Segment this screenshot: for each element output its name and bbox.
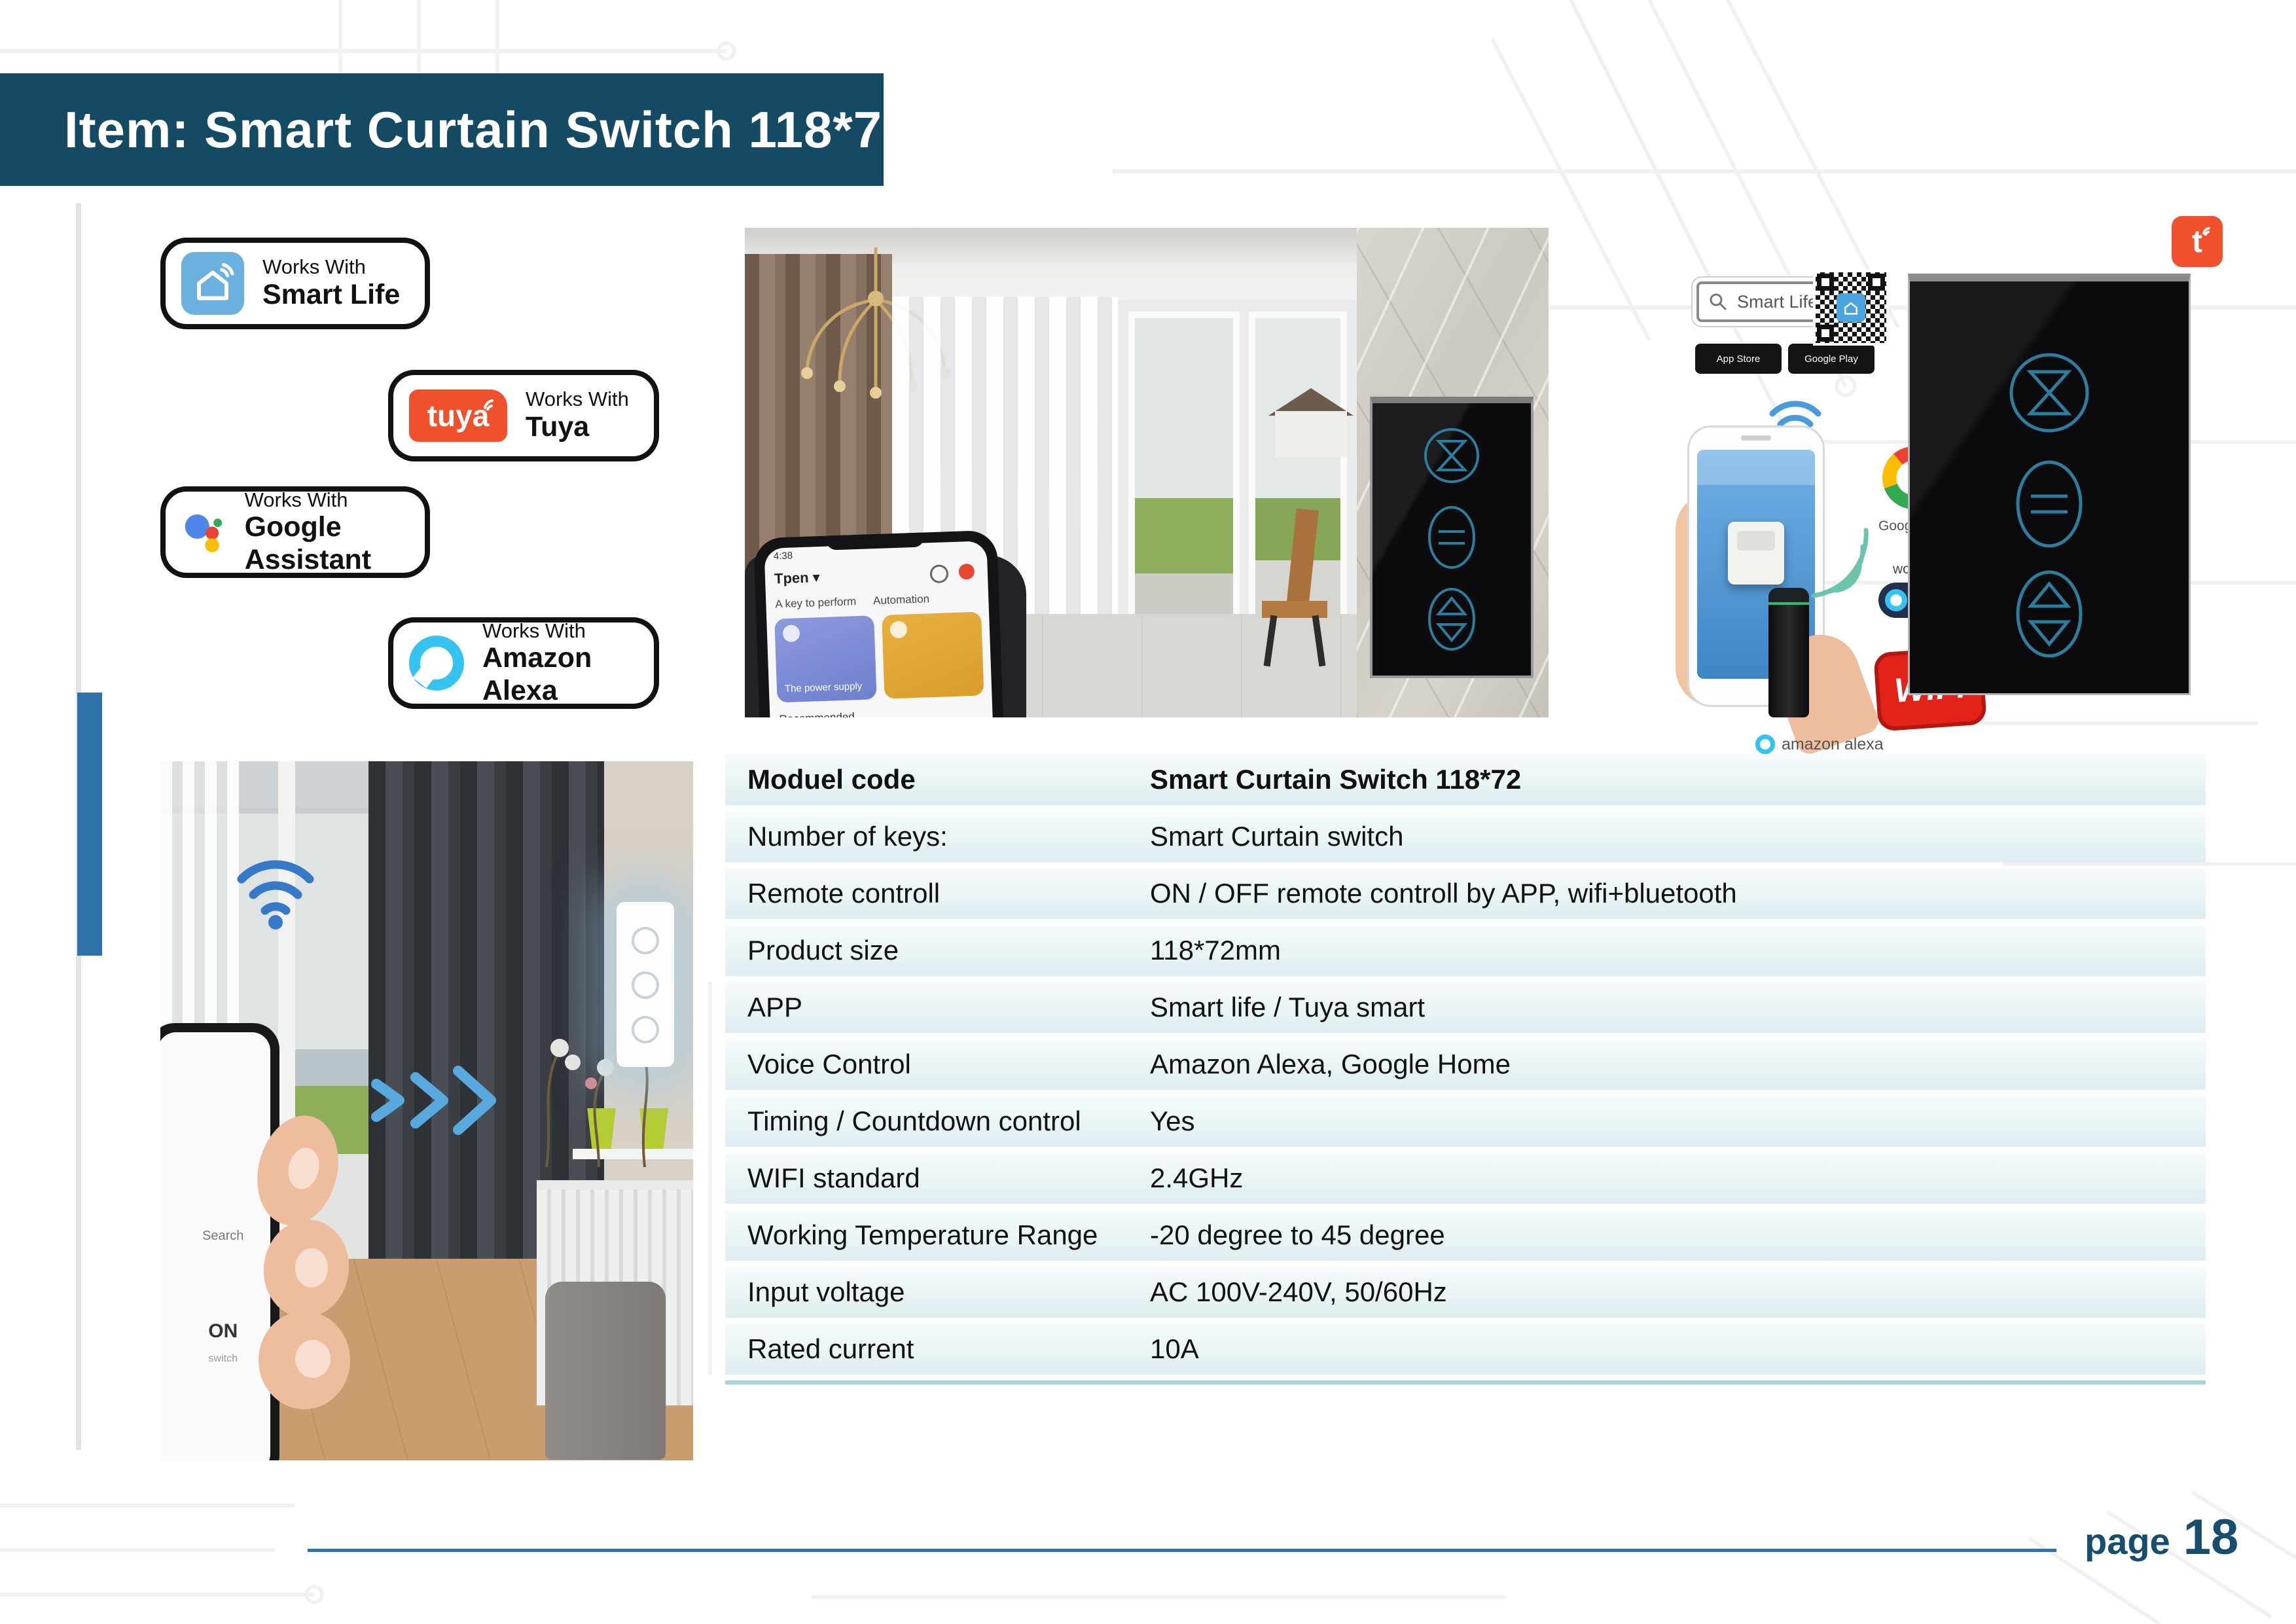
app-home-selector[interactable]: Tpen ▾ bbox=[774, 569, 821, 587]
microphone-icon[interactable] bbox=[929, 564, 948, 583]
search-text: Smart Life bbox=[1737, 292, 1818, 312]
table-row: Voice Control Amazon Alexa, Google Home bbox=[725, 1039, 2206, 1090]
scene-icon bbox=[889, 621, 907, 638]
spec-value: Yes bbox=[1150, 1106, 1195, 1137]
page-title: Item: Smart Curtain Switch 118*72 bbox=[0, 100, 911, 160]
page-label: page bbox=[2085, 1520, 2170, 1562]
spec-label: Product size bbox=[725, 935, 1150, 966]
spec-label: WIFI standard bbox=[725, 1163, 1150, 1194]
amazon-echo-speaker bbox=[1768, 588, 1809, 717]
badge-amazon-alexa: Works With Amazon Alexa bbox=[388, 617, 659, 709]
table-row: Working Temperature Range -20 degree to … bbox=[725, 1210, 2206, 1261]
google-play-label: Google Play bbox=[1804, 353, 1858, 365]
app-sub-label: switch bbox=[209, 1353, 238, 1365]
wifi-icon bbox=[223, 839, 328, 930]
badge-works-with-label: Works With bbox=[262, 255, 400, 279]
page-number-value: 18 bbox=[2183, 1509, 2239, 1566]
table-row: Moduel code Smart Curtain Switch 118*72 bbox=[725, 754, 2206, 805]
badge-platform-name: Amazon Alexa bbox=[482, 642, 638, 707]
smart-life-icon bbox=[181, 252, 244, 315]
spec-value: ON / OFF remote controll by APP, wifi+bl… bbox=[1150, 878, 1737, 909]
spec-value: Smart Curtain switch bbox=[1150, 821, 1403, 852]
table-row: Rated current 10A bbox=[725, 1324, 2206, 1375]
alexa-ring-icon bbox=[1755, 734, 1775, 754]
app-screen: 4:38 Tpen ▾ A key to perform Automation … bbox=[764, 541, 993, 717]
spec-label: Voice Control bbox=[725, 1049, 1150, 1080]
catalog-page: Item: Smart Curtain Switch 118*72 Works … bbox=[0, 0, 2296, 1624]
app-store-badge[interactable]: App Store bbox=[1695, 344, 1782, 374]
badge-platform-name: Google Assistant bbox=[245, 511, 409, 576]
table-row: Timing / Countdown control Yes bbox=[725, 1096, 2206, 1147]
app-small-label: Search bbox=[202, 1229, 243, 1244]
smartphone-with-app: 4:38 Tpen ▾ A key to perform Automation … bbox=[753, 530, 1003, 717]
app-store-label: App Store bbox=[1717, 353, 1761, 365]
page-header-banner: Item: Smart Curtain Switch 118*72 bbox=[0, 73, 884, 186]
app-screen: Search ON switch bbox=[160, 1032, 270, 1460]
door-glass bbox=[1128, 312, 1240, 652]
badge-platform-name: Tuya bbox=[526, 411, 629, 443]
spec-value: 2.4GHz bbox=[1150, 1163, 1243, 1194]
badge-works-with-label: Works With bbox=[482, 619, 638, 643]
curtain-switch-product bbox=[1908, 274, 2191, 695]
table-row: Product size 118*72mm bbox=[725, 925, 2206, 976]
smart-life-icon bbox=[1837, 293, 1865, 322]
spec-label: APP bbox=[725, 992, 1150, 1023]
scene-card-yellow[interactable] bbox=[882, 612, 984, 699]
spec-value: Smart life / Tuya smart bbox=[1150, 992, 1425, 1023]
table-row: Number of keys: Smart Curtain switch bbox=[725, 811, 2206, 862]
scene-icon bbox=[783, 624, 800, 642]
spec-label: Moduel code bbox=[725, 764, 1150, 795]
amazon-alexa-label: amazon alexa bbox=[1782, 735, 1884, 754]
wall-curtain-switch bbox=[617, 902, 674, 1067]
spec-value: -20 degree to 45 degree bbox=[1150, 1219, 1445, 1251]
store-badges: App Store Google Play bbox=[1695, 344, 1874, 374]
app-status-time: 4:38 bbox=[774, 550, 793, 562]
app-tab-tap-to-run[interactable]: A key to perform bbox=[775, 595, 856, 611]
scene-card-blue[interactable]: The power supply bbox=[774, 615, 876, 702]
qr-code bbox=[1813, 270, 1889, 346]
tuya-t-glyph: t bbox=[2192, 224, 2202, 260]
spec-label: Timing / Countdown control bbox=[725, 1106, 1150, 1137]
spec-label: Number of keys: bbox=[725, 821, 1150, 852]
spec-value: AC 100V-240V, 50/60Hz bbox=[1150, 1276, 1447, 1308]
curtain-switch-on-wall bbox=[1370, 397, 1534, 678]
tuya-app-icon: t bbox=[2172, 216, 2223, 267]
spec-label: Input voltage bbox=[725, 1276, 1150, 1308]
app-tab-automation[interactable]: Automation bbox=[873, 592, 930, 607]
badge-works-with-label: Works With bbox=[526, 388, 629, 411]
outside-house bbox=[1275, 411, 1347, 457]
gray-ottoman bbox=[545, 1282, 666, 1460]
spec-value: Amazon Alexa, Google Home bbox=[1150, 1049, 1511, 1080]
wooden-chair bbox=[1255, 509, 1334, 666]
spec-label: Working Temperature Range bbox=[725, 1219, 1150, 1251]
spec-label: Remote controll bbox=[725, 878, 1150, 909]
spec-value: 118*72mm bbox=[1150, 935, 1281, 966]
badge-smart-life: Works With Smart Life bbox=[160, 238, 430, 329]
app-on-label: ON bbox=[208, 1320, 238, 1343]
curtain-control-photo: Search ON switch bbox=[160, 761, 693, 1460]
table-row: Input voltage AC 100V-240V, 50/60Hz bbox=[725, 1267, 2206, 1318]
google-assistant-icon bbox=[181, 501, 226, 564]
table-row: APP Smart life / Tuya smart bbox=[725, 982, 2206, 1033]
amazon-alexa-caption: amazon alexa bbox=[1755, 734, 1884, 754]
table-row: WIFI standard 2.4GHz bbox=[725, 1153, 2206, 1204]
tuya-logo-text: tuya bbox=[427, 398, 490, 433]
spec-label: Rated current bbox=[725, 1333, 1150, 1365]
add-device-icon[interactable] bbox=[958, 564, 975, 580]
badge-platform-name: Smart Life bbox=[262, 279, 400, 311]
fingernail bbox=[295, 1248, 328, 1288]
amazon-alexa-icon bbox=[409, 636, 464, 691]
badge-tuya: tuya Works With Tuya bbox=[388, 370, 659, 461]
google-play-badge[interactable]: Google Play bbox=[1788, 344, 1874, 374]
spec-value: Smart Curtain Switch 118*72 bbox=[1150, 764, 1521, 795]
product-lifestyle-photo: 4:38 Tpen ▾ A key to perform Automation … bbox=[745, 228, 1549, 717]
phone-in-hand: Search ON switch bbox=[160, 1023, 279, 1460]
table-bottom-rule bbox=[725, 1380, 2206, 1384]
connectivity-diagram: t Smart Life App Store Google Play G bbox=[1682, 216, 2271, 740]
page-number: page 18 bbox=[2085, 1509, 2238, 1566]
switch-widget[interactable] bbox=[1728, 522, 1784, 585]
scene-card-label: The power supply bbox=[785, 681, 869, 695]
search-icon bbox=[1708, 292, 1728, 312]
spec-value: 10A bbox=[1150, 1333, 1199, 1365]
signal-arcs-icon bbox=[1804, 524, 1889, 602]
badge-works-with-label: Works With bbox=[245, 488, 409, 512]
spec-table: Moduel code Smart Curtain Switch 118*72 … bbox=[725, 754, 2206, 1384]
app-section-recommended: Recommended bbox=[779, 710, 855, 717]
fingernail bbox=[295, 1340, 331, 1378]
tuya-logo-icon: tuya bbox=[409, 389, 507, 442]
left-accent-bar bbox=[77, 693, 102, 956]
signal-chevrons-icon bbox=[363, 1055, 507, 1146]
table-row: Remote controll ON / OFF remote controll… bbox=[725, 868, 2206, 919]
footer-rule bbox=[308, 1549, 2056, 1552]
badge-google-assistant: Works With Google Assistant bbox=[160, 486, 430, 578]
